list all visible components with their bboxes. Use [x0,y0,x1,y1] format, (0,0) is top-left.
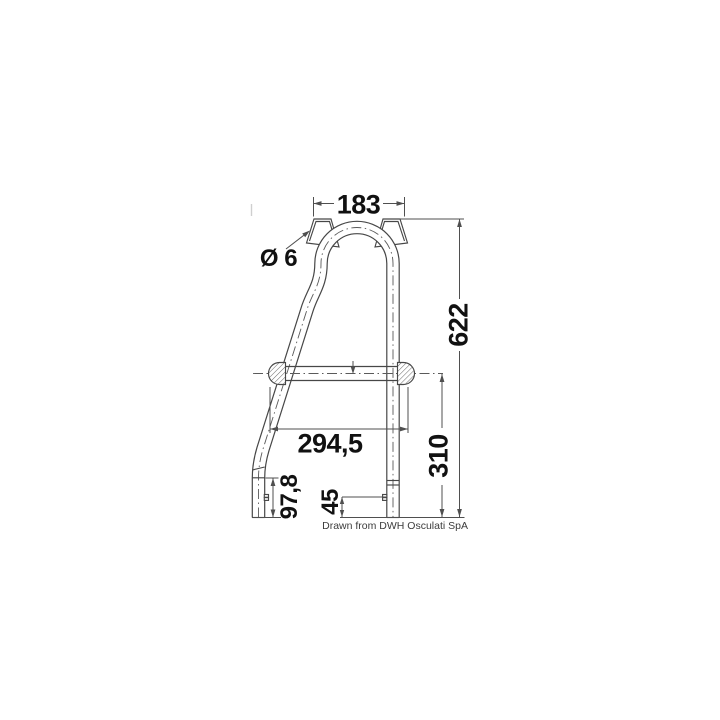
dim-rung-span-arrow-right [400,427,408,432]
dim-label-clamp-offset: 45 [317,489,344,515]
dim-rung-to-bottom-arrow-bottom [440,509,445,517]
dim-label-hole-diameter: Ø 6 [260,245,297,272]
dim-label-left-leg-lower: 97,8 [276,474,303,519]
technical-drawing: 183 Ø 6 622 294,5 310 [0,0,720,720]
dim-clamp-offset: 45 [317,489,386,517]
rung-center-marker [351,361,355,374]
rung-end-cap-right [398,363,415,385]
dim-top-width-arrow-left [314,201,322,206]
credit-text: Drawn from DWH Osculati SpA [322,520,468,532]
dim-left-leg-arrow-top [271,478,276,486]
dim-label-top-width: 183 [337,190,381,220]
right-leg-clamp-screw-bottom [383,498,387,501]
dim-total-height-arrow-top [457,219,462,227]
left-leg-clamp-screw-bottom [264,498,268,501]
rung-end-cap-left [269,363,286,385]
dim-rung-to-bottom-arrow-top [440,374,445,382]
dim-top-width-arrow-right [397,201,405,206]
dim-left-leg-arrow-bottom [271,510,276,518]
dim-rung-to-bottom: 310 [424,374,454,517]
dim-total-height-arrow-bottom [457,509,462,517]
dim-label-rung-to-bottom: 310 [424,434,454,478]
left-leg-clamp-screw-top [264,495,268,498]
dim-label-rung-span: 294,5 [297,429,363,459]
dim-top-width: 183 [314,190,405,220]
dim-label-total-height: 622 [444,303,474,347]
drawing-page: 183 Ø 6 622 294,5 310 [0,0,720,720]
dim-hole-diameter: Ø 6 [260,231,310,273]
rung [253,361,443,385]
